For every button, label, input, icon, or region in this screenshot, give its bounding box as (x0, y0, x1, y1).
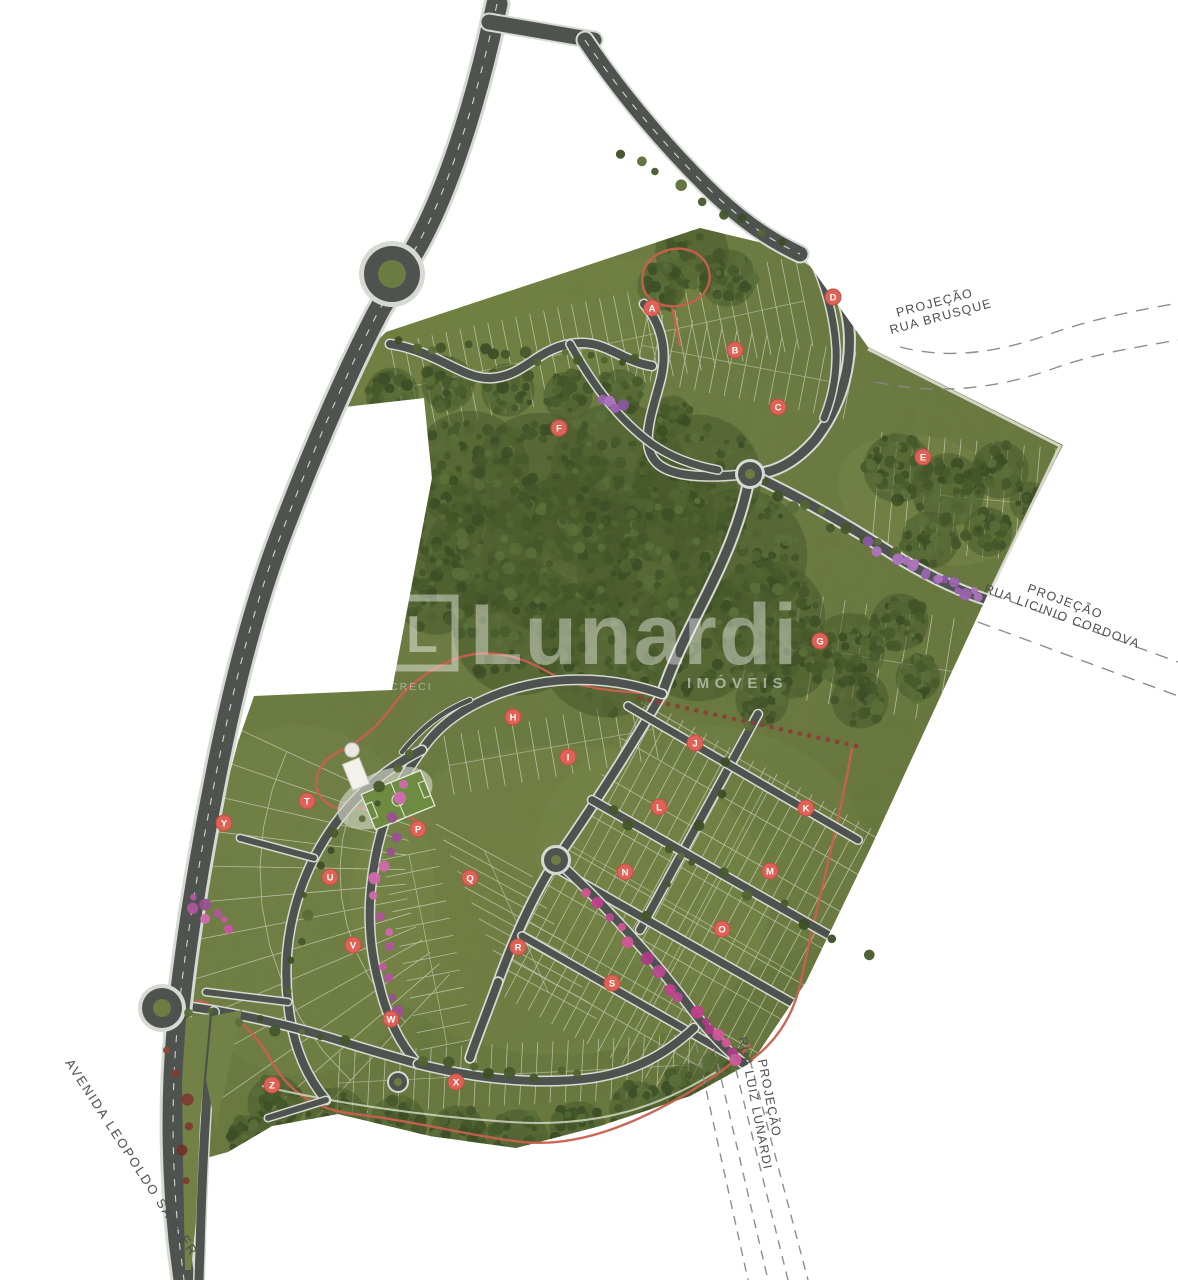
tree (652, 965, 665, 978)
tree (375, 800, 381, 806)
tree (688, 859, 695, 866)
tree (379, 861, 390, 872)
block-marker-letter: F (556, 423, 562, 434)
block-marker-o: O (714, 921, 730, 937)
tree (787, 501, 799, 513)
tree (934, 575, 943, 584)
tree (328, 847, 335, 854)
block-marker-letter: O (718, 924, 725, 935)
site-plan-map: ABCDEFGHIJKLMNOPQRSTUVWXYZ PROJEÇÃO RUA … (0, 0, 1178, 1280)
boundary-dot (675, 704, 680, 709)
block-marker-letter: R (515, 942, 522, 953)
tree (443, 1057, 454, 1068)
tree (317, 1034, 324, 1041)
block-marker-letter: X (453, 1077, 460, 1088)
tree (368, 872, 380, 884)
boundary-dot (788, 729, 793, 734)
tree (971, 587, 978, 594)
tree (395, 336, 403, 344)
tree (269, 1025, 280, 1036)
tree (742, 890, 753, 901)
block-marker-e: E (915, 449, 931, 465)
block-marker-letter: K (803, 803, 810, 814)
boundary-dot (694, 708, 699, 713)
block-marker-y: Y (216, 815, 232, 831)
tree (393, 764, 402, 773)
roundabout-island (394, 1078, 402, 1086)
block-marker-letter: J (692, 738, 697, 749)
tree (606, 913, 614, 921)
tree (317, 862, 325, 870)
tree (691, 1006, 704, 1019)
tree (436, 343, 446, 353)
tree (581, 888, 590, 897)
tree (207, 1008, 213, 1014)
tree (737, 214, 746, 223)
tree (949, 577, 960, 588)
tree (176, 1145, 187, 1156)
tree (199, 899, 211, 911)
label-rua-brusque: PROJEÇÃO RUA BRUSQUE (884, 282, 993, 337)
boundary-dot (854, 744, 859, 749)
tree (171, 1069, 179, 1077)
block-marker-r: R (510, 939, 526, 955)
block-marker-h: H (505, 709, 521, 725)
tree (185, 1122, 193, 1130)
tree (712, 1029, 724, 1041)
tree (910, 559, 919, 568)
tree (637, 156, 647, 166)
tree (394, 792, 407, 805)
tree (379, 963, 387, 971)
boundary-dot (779, 727, 784, 732)
tree (190, 894, 197, 901)
tree (675, 179, 687, 191)
tree (182, 1094, 194, 1106)
block-marker-letter: T (304, 796, 310, 807)
tree (183, 1177, 190, 1184)
tree (758, 229, 766, 237)
tree (412, 343, 422, 353)
block-marker-p: P (410, 821, 426, 837)
tree (698, 198, 707, 207)
tree (864, 950, 875, 961)
block-marker-letter: W (387, 1014, 396, 1025)
tree (818, 506, 826, 514)
tree (298, 938, 306, 946)
tree (235, 1018, 243, 1026)
tree (641, 952, 654, 965)
tree (533, 358, 541, 366)
roundabout-island (745, 469, 755, 479)
block-marker-letter: Z (269, 1080, 275, 1091)
tree (588, 352, 595, 359)
tree (601, 357, 608, 364)
tree (470, 1063, 478, 1071)
block-marker-n: N (617, 864, 633, 880)
tree (373, 781, 385, 793)
tree (694, 820, 705, 831)
masterplan-svg: ABCDEFGHIJKLMNOPQRSTUVWXYZ PROJEÇÃO RUA … (0, 0, 1178, 1280)
tree (389, 994, 396, 1001)
boundary-dot (797, 731, 802, 736)
block-marker-letter: E (920, 452, 926, 463)
tree (719, 210, 729, 220)
tree (488, 348, 499, 359)
tree (874, 538, 882, 546)
tree (573, 355, 583, 365)
boundary-dot (638, 696, 643, 701)
tree (287, 957, 294, 964)
tree (641, 911, 651, 921)
tree (224, 924, 233, 933)
block-marker-letter: N (622, 867, 629, 878)
boundary-dot (647, 698, 652, 703)
boundary-dot (844, 742, 849, 747)
boundary-dot (826, 737, 831, 742)
tree (762, 478, 769, 485)
boundary-dot (750, 721, 755, 726)
tree (520, 346, 532, 358)
watermark-creci: CRECI (390, 681, 433, 693)
tree (562, 349, 569, 356)
tree (778, 238, 786, 246)
block-marker-letter: C (775, 402, 782, 413)
block-marker-u: U (322, 869, 338, 885)
block-marker-letter: L (656, 802, 662, 813)
tree (385, 942, 394, 951)
block-marker-letter: D (830, 292, 837, 303)
tree (619, 359, 626, 366)
block-marker-letter: V (350, 940, 357, 951)
block-marker-letter: Y (221, 818, 228, 829)
tree (213, 909, 222, 918)
block-marker-s: S (604, 975, 620, 991)
tree (722, 1038, 731, 1047)
block-marker-d: D (825, 289, 841, 305)
block-marker-letter: P (415, 824, 422, 835)
tree (618, 923, 626, 931)
tree (863, 536, 874, 547)
block-marker-letter: H (510, 712, 517, 723)
boundary-dot (713, 712, 718, 717)
label-rua-licinio-cordova: PROJEÇÃO RUA LICINIO CORDOVA (982, 567, 1147, 651)
tree (616, 150, 625, 159)
tree (781, 900, 789, 908)
proj-licinio-line-2 (978, 622, 1178, 696)
block-marker-i: I (560, 749, 576, 765)
tree (405, 749, 414, 758)
tree (302, 910, 313, 921)
block-marker-letter: U (327, 872, 334, 883)
watermark-logo-letter: L (406, 606, 438, 664)
tree (799, 919, 810, 930)
boundary-dot (769, 725, 774, 730)
block-marker-z: Z (264, 1077, 280, 1093)
tree (892, 554, 904, 566)
tree (665, 881, 671, 887)
road-casing (585, 40, 800, 254)
tree (721, 757, 731, 767)
tree (826, 523, 835, 532)
tree (392, 832, 402, 842)
tree (221, 916, 228, 923)
watermark-brand: Lunardi (470, 587, 799, 683)
block-marker-letter: B (732, 345, 739, 356)
block-marker-v: V (345, 937, 361, 953)
block-marker-t: T (299, 793, 315, 809)
block-marker-letter: A (649, 303, 656, 314)
boundary-dot (741, 719, 746, 724)
tree (622, 936, 634, 948)
boundary-dot (703, 710, 708, 715)
tree (609, 805, 619, 815)
block-marker-letter: G (816, 636, 823, 647)
tree (677, 853, 684, 860)
block-marker-l: L (651, 799, 667, 815)
tree (163, 1047, 170, 1054)
block-marker-letter: S (609, 978, 615, 989)
block-marker-letter: Q (466, 873, 473, 884)
block-marker-q: Q (462, 870, 478, 886)
boundary-dot (722, 715, 727, 720)
block-marker-m: M (762, 863, 778, 879)
tree (418, 1056, 429, 1067)
block-marker-g: G (812, 633, 828, 649)
tree (369, 891, 377, 899)
tree (592, 897, 604, 909)
tree (428, 346, 437, 355)
block-marker-f: F (551, 420, 567, 436)
boundary-dot (732, 717, 737, 722)
boundary-dot (807, 733, 812, 738)
tree (530, 1073, 539, 1082)
tree (558, 1066, 566, 1074)
tree (618, 400, 629, 411)
tree (399, 780, 408, 789)
boundary-dot (835, 740, 840, 745)
block-marker-w: W (383, 1011, 399, 1027)
tree (665, 845, 674, 854)
tree (385, 928, 393, 936)
tree (299, 1029, 305, 1035)
boundary-dot (816, 735, 821, 740)
tree (465, 341, 473, 349)
boundary-dot (685, 706, 690, 711)
block-marker-a: A (644, 300, 660, 316)
tree (719, 867, 729, 877)
tree (872, 546, 882, 556)
roundabout-island (551, 855, 561, 865)
tree (384, 973, 393, 982)
block-marker-letter: M (766, 866, 774, 877)
tree (959, 588, 971, 600)
block-marker-j: J (687, 735, 703, 751)
block-marker-k: K (798, 800, 814, 816)
gazebo-pad (345, 743, 359, 757)
tree (922, 568, 931, 577)
tree (828, 935, 837, 944)
tree (257, 1015, 264, 1022)
tree (501, 350, 510, 359)
tree (359, 815, 366, 822)
tree (285, 988, 291, 994)
tree (772, 491, 783, 502)
tree (651, 168, 659, 176)
tree (301, 892, 307, 898)
tree (841, 523, 852, 534)
tree (376, 912, 385, 921)
tree (187, 903, 198, 914)
tree (200, 914, 210, 924)
tree (573, 1069, 581, 1077)
roundabout-island (378, 260, 406, 288)
boundary-dot (657, 700, 662, 705)
tree (672, 992, 682, 1002)
tree (184, 1009, 193, 1018)
tree (800, 500, 810, 510)
boundary-dot (666, 702, 671, 707)
tree (630, 354, 639, 363)
block-marker-b: B (727, 342, 743, 358)
tree (483, 1068, 494, 1079)
tree (329, 828, 339, 838)
watermark-tagline: IMÓVEIS (687, 674, 788, 692)
tree (623, 820, 634, 831)
tree (340, 1035, 350, 1045)
roundabout-island (153, 999, 171, 1017)
boundary-dot (760, 723, 765, 728)
block-marker-x: X (448, 1074, 464, 1090)
tree (504, 1067, 516, 1079)
tree (387, 848, 395, 856)
tree (717, 790, 726, 799)
block-marker-c: C (770, 399, 786, 415)
block-marker-letter: I (567, 752, 570, 763)
tree (387, 812, 398, 823)
